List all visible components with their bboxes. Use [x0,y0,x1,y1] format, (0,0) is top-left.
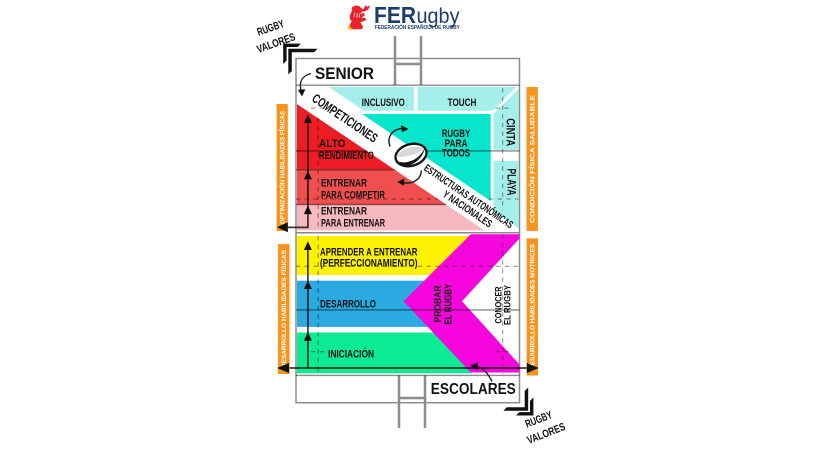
svg-text:EL RUGBY: EL RUGBY [443,283,454,324]
svg-text:RENDIMIENTO: RENDIMIENTO [319,150,374,162]
svg-text:INCLUSIVO: INCLUSIVO [362,97,405,109]
svg-text:FEDERACIÓN ESPAÑOLA DE RUGBY: FEDERACIÓN ESPAÑOLA DE RUGBY [375,23,460,31]
svg-text:OPTIMIZACIÓN HABILIDADES FÍSIC: OPTIMIZACIÓN HABILIDADES FÍSICAS [278,111,287,224]
svg-text:PARA COMPETIR: PARA COMPETIR [321,189,385,201]
svg-text:TOUCH: TOUCH [448,97,477,109]
svg-text:PLAYA: PLAYA [504,169,518,196]
svg-text:INICIACIÓN: INICIACIÓN [328,347,374,360]
svg-text:DESARROLLO: DESARROLLO [320,299,376,311]
svg-text:ENTRENAR: ENTRENAR [321,177,367,189]
svg-text:ESCOLARES: ESCOLARES [431,381,516,398]
svg-text:DESARROLLO HABILIDADES FÍSICAS: DESARROLLO HABILIDADES FÍSICAS [279,250,288,368]
svg-text:PARA ENTRENAR: PARA ENTRENAR [321,218,385,230]
svg-text:ENTRENAR: ENTRENAR [321,206,367,218]
svg-text:ALTO: ALTO [319,138,346,150]
svg-text:SENIOR: SENIOR [315,65,374,83]
svg-text:DESARROLLO HABILIDADES MOTRIC: DESARROLLO HABILIDADES MOTRICES [530,244,537,370]
svg-text:(PERFECCIONAMIENTO): (PERFECCIONAMIENTO) [320,257,418,269]
svg-text:PROBAR: PROBAR [433,285,444,323]
svg-text:EL RUGBY: EL RUGBY [502,284,513,325]
svg-text:CONDICIÓN FÍSICA SALUDABLE: CONDICIÓN FÍSICA SALUDABLE [528,95,537,223]
svg-text:CINTA: CINTA [503,118,517,146]
svg-text:TODOS: TODOS [442,148,470,160]
